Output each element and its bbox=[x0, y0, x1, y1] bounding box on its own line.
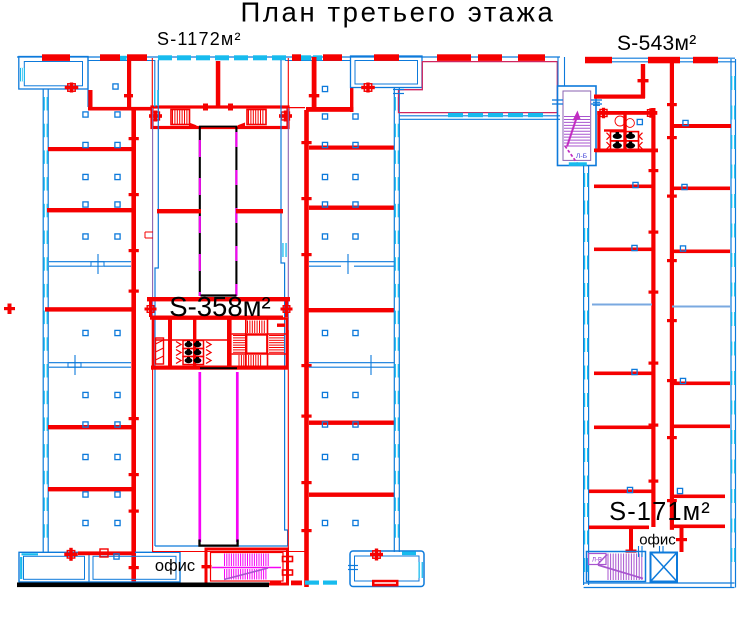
svg-text:S-171м²: S-171м² bbox=[609, 498, 711, 526]
svg-text:План третьего этажа: План третьего этажа bbox=[241, 0, 556, 28]
svg-text:Л-Б: Л-Б bbox=[576, 153, 588, 160]
svg-text:офис: офис bbox=[639, 532, 676, 549]
svg-text:S-1172м²: S-1172м² bbox=[157, 29, 242, 49]
svg-text:офис: офис bbox=[155, 557, 195, 575]
svg-text:S-543м²: S-543м² bbox=[617, 32, 697, 55]
svg-text:S-358м²: S-358м² bbox=[169, 291, 270, 322]
